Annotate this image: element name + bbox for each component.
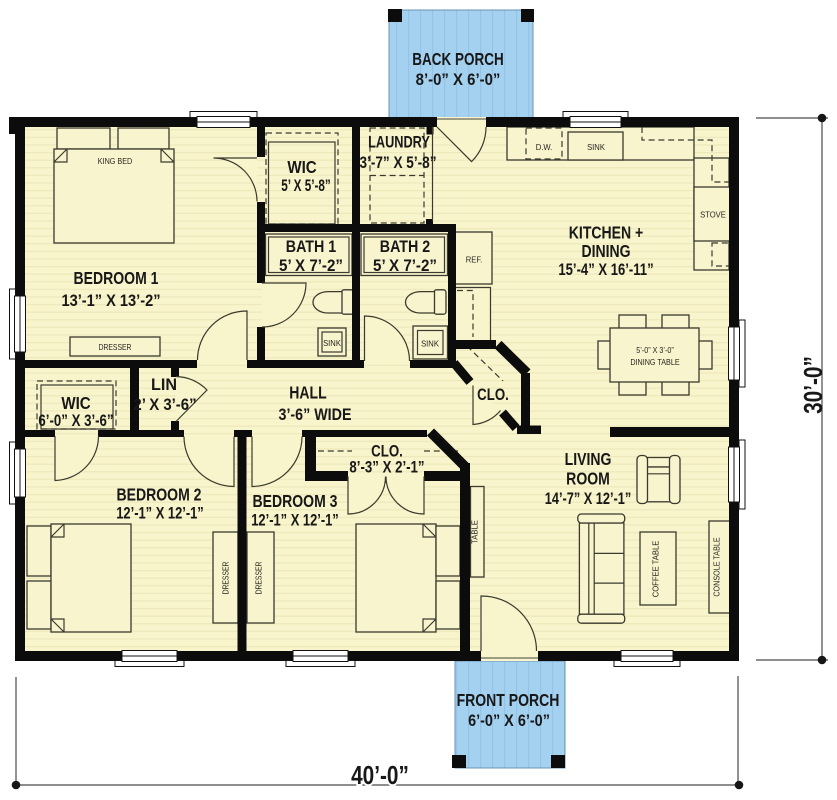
svg-text:15’-4” X 16’-11”: 15’-4” X 16’-11” bbox=[558, 260, 653, 279]
svg-text:3’-7” X 5’-8”: 3’-7” X 5’-8” bbox=[359, 154, 436, 173]
svg-text:DRESSER: DRESSER bbox=[99, 342, 132, 352]
svg-text:13’-1” X 13’-2”: 13’-1” X 13’-2” bbox=[61, 292, 160, 310]
svg-text:SINK: SINK bbox=[587, 143, 605, 152]
svg-text:12’-1” X 12’-1”: 12’-1” X 12’-1” bbox=[116, 504, 203, 523]
svg-text:DINING TABLE: DINING TABLE bbox=[630, 358, 679, 367]
svg-text:STOVE: STOVE bbox=[700, 210, 726, 219]
svg-text:SINK: SINK bbox=[323, 339, 341, 348]
svg-text:5’-0” X 3’-0”: 5’-0” X 3’-0” bbox=[636, 346, 674, 355]
svg-text:ROOM: ROOM bbox=[566, 469, 610, 489]
svg-text:KING BED: KING BED bbox=[98, 156, 133, 166]
svg-text:WIC: WIC bbox=[61, 393, 90, 414]
svg-text:5’ X 7’-2”: 5’ X 7’-2” bbox=[373, 256, 437, 275]
svg-text:D.W.: D.W. bbox=[536, 143, 553, 152]
svg-text:6’-0” X 6’-0”: 6’-0” X 6’-0” bbox=[468, 712, 550, 730]
svg-text:CONSOLE TABLE: CONSOLE TABLE bbox=[712, 537, 721, 596]
svg-text:6’-0” X 3’-6”: 6’-0” X 3’-6” bbox=[38, 412, 113, 431]
svg-text:DINING: DINING bbox=[581, 241, 630, 261]
svg-text:HALL: HALL bbox=[289, 383, 327, 403]
svg-text:8’-3” X 2’-1”: 8’-3” X 2’-1” bbox=[349, 458, 424, 477]
svg-text:BEDROOM 3: BEDROOM 3 bbox=[253, 491, 338, 511]
svg-text:40’-0”: 40’-0” bbox=[351, 761, 409, 790]
svg-text:BACK PORCH: BACK PORCH bbox=[412, 50, 503, 69]
svg-text:LAUNDRY: LAUNDRY bbox=[368, 133, 430, 152]
svg-text:FRONT PORCH: FRONT PORCH bbox=[457, 690, 560, 710]
svg-text:BEDROOM 1: BEDROOM 1 bbox=[74, 268, 159, 288]
svg-text:12’-1” X 12’-1”: 12’-1” X 12’-1” bbox=[251, 511, 338, 530]
svg-text:LIVING: LIVING bbox=[565, 449, 612, 469]
svg-text:TABLE: TABLE bbox=[470, 520, 479, 544]
svg-text:14’-7” X 12’-1”: 14’-7” X 12’-1” bbox=[545, 489, 631, 508]
svg-text:5’ X 5’-8”: 5’ X 5’-8” bbox=[281, 177, 331, 196]
svg-text:SINK: SINK bbox=[421, 339, 439, 348]
svg-text:REF.: REF. bbox=[466, 255, 483, 264]
svg-text:BATH 2: BATH 2 bbox=[380, 238, 431, 256]
svg-text:WIC: WIC bbox=[287, 157, 316, 178]
svg-text:LIN: LIN bbox=[151, 375, 177, 394]
svg-text:2’ X 3’-6”: 2’ X 3’-6” bbox=[133, 396, 196, 414]
svg-text:5’ X 7’-2”: 5’ X 7’-2” bbox=[279, 256, 343, 275]
svg-text:KITCHEN +: KITCHEN + bbox=[569, 223, 643, 243]
svg-text:BATH 1: BATH 1 bbox=[286, 238, 337, 256]
svg-text:COFFEE TABLE: COFFEE TABLE bbox=[651, 540, 660, 597]
svg-text:BEDROOM 2: BEDROOM 2 bbox=[117, 485, 202, 505]
svg-text:DRESSER: DRESSER bbox=[221, 562, 231, 595]
svg-text:3’-6” WIDE: 3’-6” WIDE bbox=[279, 406, 352, 424]
svg-text:CLO.: CLO. bbox=[477, 386, 509, 405]
svg-text:30’-0”: 30’-0” bbox=[799, 356, 828, 414]
svg-text:8’-0” X 6’-0”: 8’-0” X 6’-0” bbox=[416, 71, 501, 89]
svg-text:DRESSER: DRESSER bbox=[254, 562, 264, 595]
